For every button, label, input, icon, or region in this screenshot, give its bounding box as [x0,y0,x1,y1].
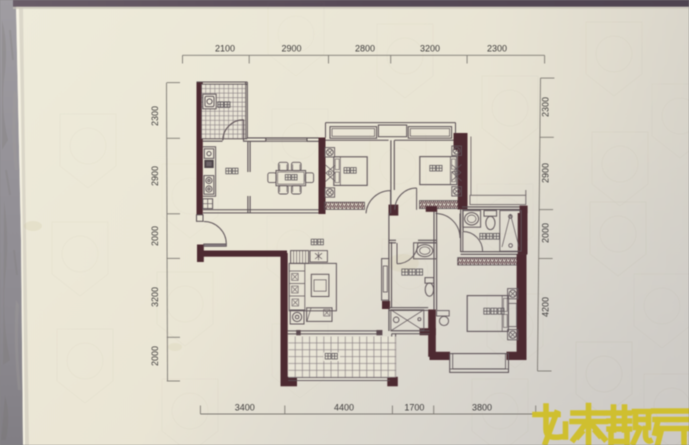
svg-text:2300: 2300 [541,97,551,117]
svg-text:3400: 3400 [235,403,255,413]
svg-text:2000: 2000 [150,226,160,246]
svg-text:2800: 2800 [355,44,375,54]
svg-text:3200: 3200 [150,287,160,307]
svg-text:1700: 1700 [404,403,424,413]
svg-text:4200: 4200 [541,297,551,317]
svg-text:2000: 2000 [541,223,551,243]
svg-text:2000: 2000 [150,346,160,366]
svg-text:2300: 2300 [150,106,160,126]
svg-text:3800: 3800 [472,403,492,413]
svg-text:4400: 4400 [334,403,354,413]
svg-text:2300: 2300 [487,44,507,54]
svg-text:3200: 3200 [420,44,440,54]
svg-text:2900: 2900 [281,44,301,54]
svg-text:2100: 2100 [215,44,235,54]
svg-text:2900: 2900 [150,166,160,186]
svg-text:2900: 2900 [541,163,551,183]
